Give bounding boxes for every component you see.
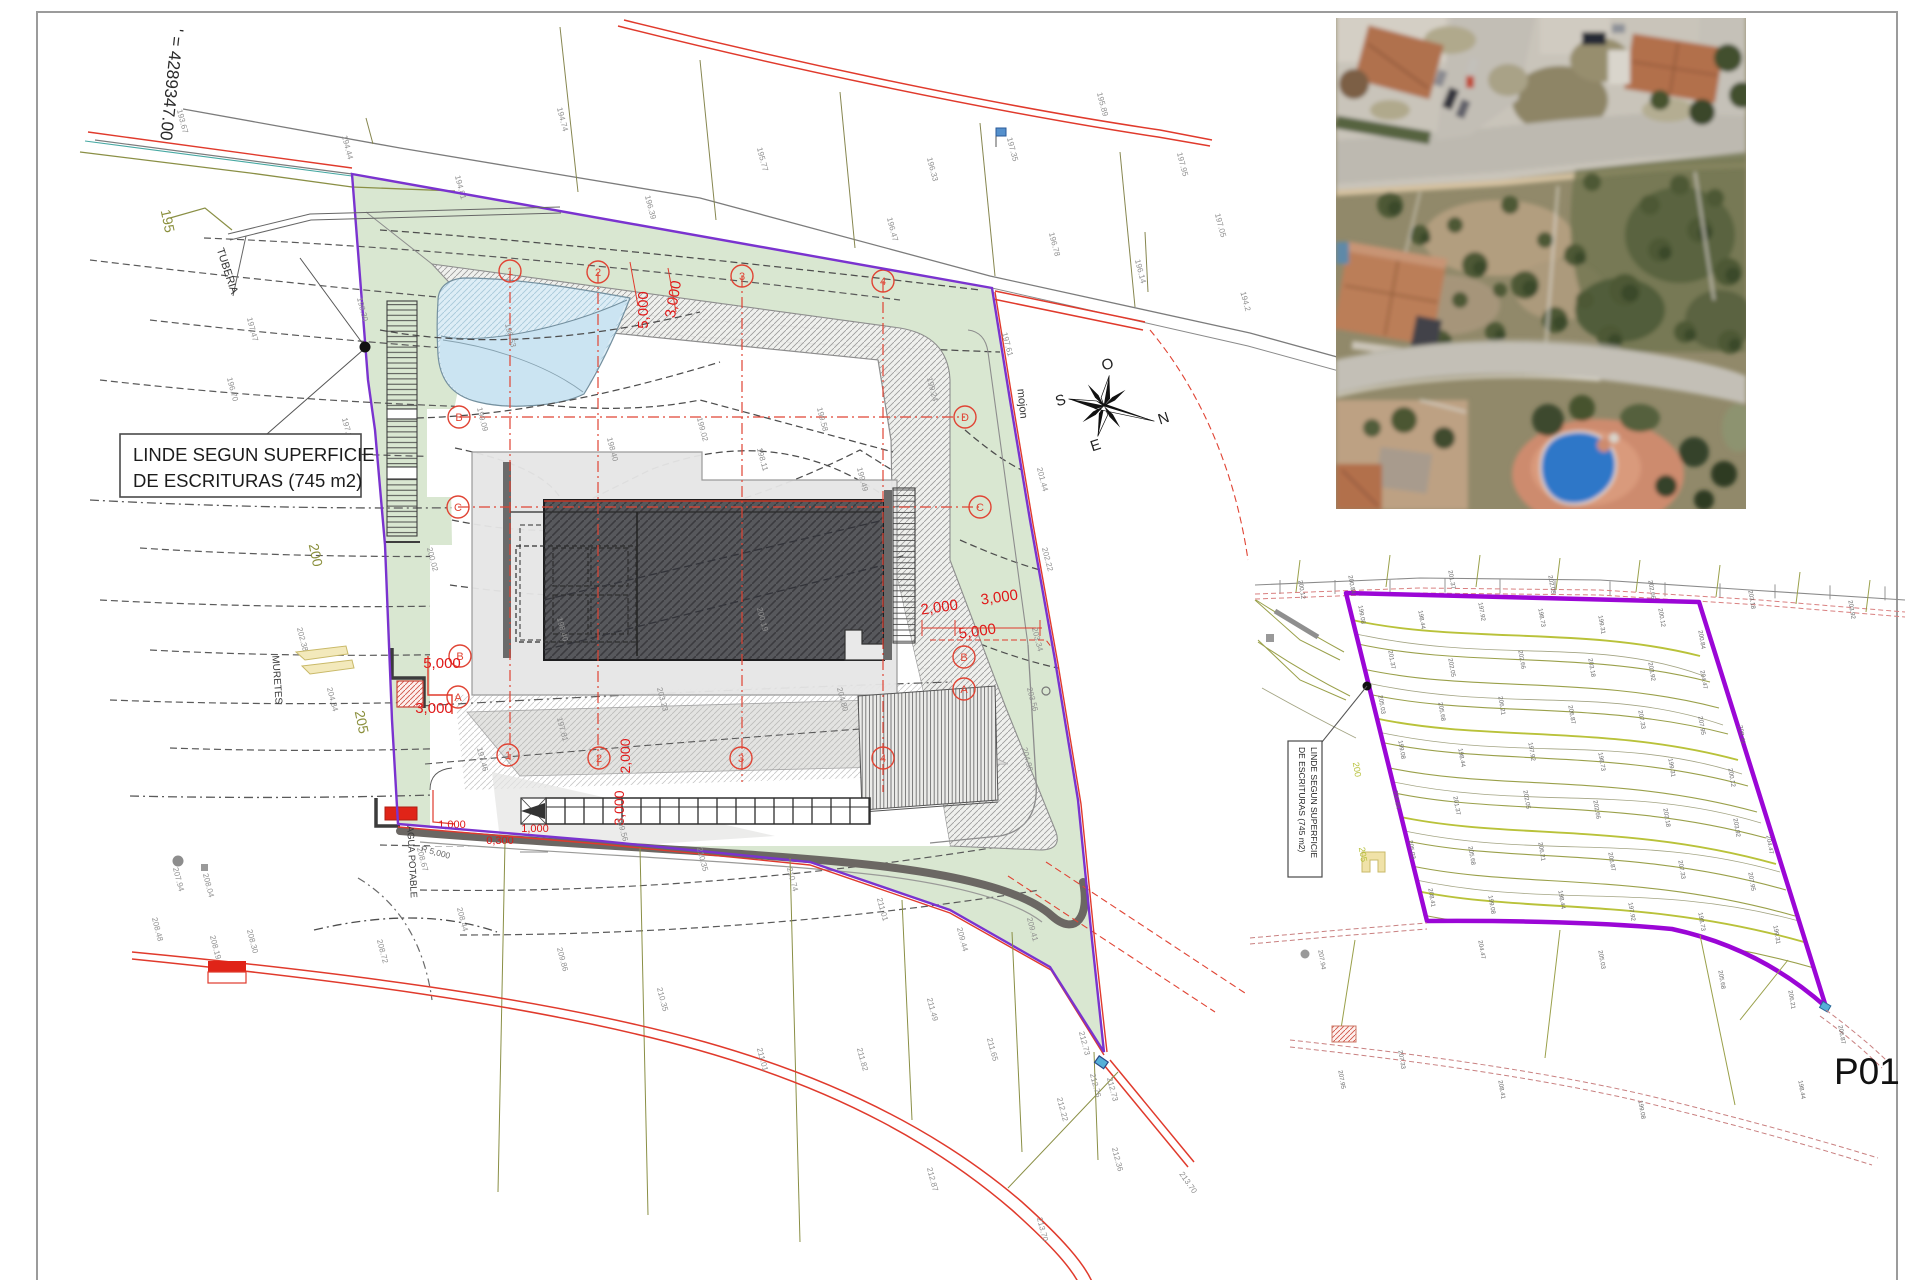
svg-text:2: 2: [596, 753, 602, 765]
svg-text:B: B: [960, 652, 967, 664]
svg-text:1: 1: [507, 266, 513, 278]
svg-text:3,000: 3,000: [415, 700, 453, 717]
svg-text:C: C: [454, 502, 462, 514]
svg-text:2: 2: [595, 267, 601, 279]
svg-text:3: 3: [738, 753, 744, 765]
svg-text:5,000: 5,000: [423, 655, 461, 672]
svg-text:LINDE SEGUN SUPERFICIE: LINDE SEGUN SUPERFICIE: [1309, 747, 1319, 858]
svg-text:A: A: [960, 684, 968, 696]
svg-text:P01: P01: [1834, 1051, 1900, 1092]
svg-text:C: C: [976, 502, 984, 514]
svg-text:4: 4: [880, 276, 886, 288]
svg-text:3: 3: [739, 271, 745, 283]
svg-text:DE ESCRITURAS (745 m2): DE ESCRITURAS (745 m2): [133, 470, 362, 491]
svg-text:DE ESCRITURAS (745 m2): DE ESCRITURAS (745 m2): [1297, 747, 1307, 852]
svg-text:B: B: [455, 412, 462, 424]
svg-text:LINDE SEGUN SUPERFICIE: LINDE SEGUN SUPERFICIE: [133, 444, 375, 465]
svg-text:5,000: 5,000: [635, 291, 652, 329]
svg-text:D: D: [961, 412, 969, 424]
svg-text:1: 1: [505, 750, 511, 762]
svg-text:4: 4: [880, 753, 886, 765]
svg-text:2,000: 2,000: [617, 738, 633, 773]
svg-text:A: A: [454, 692, 462, 704]
svg-text:1,000: 1,000: [521, 823, 549, 835]
